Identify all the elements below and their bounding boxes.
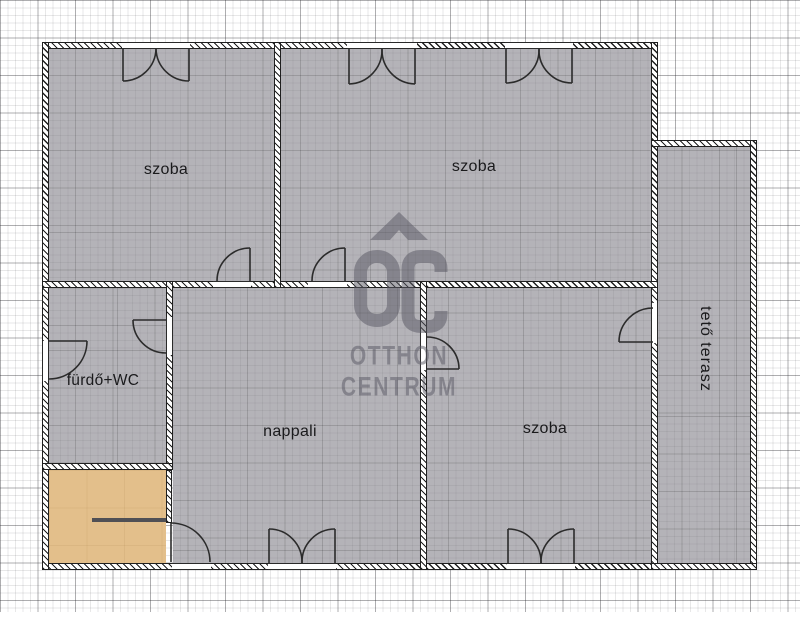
door-opening-szoba-terrace <box>651 303 658 343</box>
wall-terrace-right <box>750 140 757 570</box>
door-opening-nappali-szoba <box>420 333 427 370</box>
wall-terrace-top <box>651 140 757 147</box>
wall-furdo-right <box>166 281 173 470</box>
label-teto-terasz: tető terasz <box>696 306 714 392</box>
room-entry-terrace <box>49 470 166 563</box>
floor-plan-sheet: OC OTTHON CENTRUM szoba szoba fürdő+WC n… <box>0 0 800 612</box>
wall-divider-horizontal <box>42 281 658 288</box>
wall-entry-right <box>166 470 172 523</box>
label-nappali: nappali <box>263 423 317 441</box>
door-opening-szoba-tr <box>308 281 347 288</box>
door-opening-szoba-balcony <box>507 563 575 570</box>
door-opening-entry-door <box>172 563 211 570</box>
label-furdo-wc: fürdő+WC <box>67 372 140 390</box>
wall-exterior-left <box>42 42 49 570</box>
door-opening-top-right-window <box>505 42 573 49</box>
door-opening-nappali-balcony <box>268 563 336 570</box>
door-opening-szoba-tl <box>213 281 251 288</box>
door-opening-furdo-nappali <box>166 317 173 355</box>
wall-furdo-bottom <box>42 463 173 470</box>
label-szoba-top-left: szoba <box>144 161 188 179</box>
wall-between-top-rooms <box>274 42 281 288</box>
door-opening-top-left-window <box>122 42 190 49</box>
wall-nappali-szoba <box>420 281 427 570</box>
label-szoba-bottom-right: szoba <box>523 420 567 438</box>
label-szoba-top-right: szoba <box>452 158 496 176</box>
entry-step-line <box>92 518 168 522</box>
door-opening-furdo-exterior <box>42 341 49 381</box>
door-opening-top-mid-window <box>347 42 417 49</box>
wall-terrace-bottom <box>651 563 757 570</box>
